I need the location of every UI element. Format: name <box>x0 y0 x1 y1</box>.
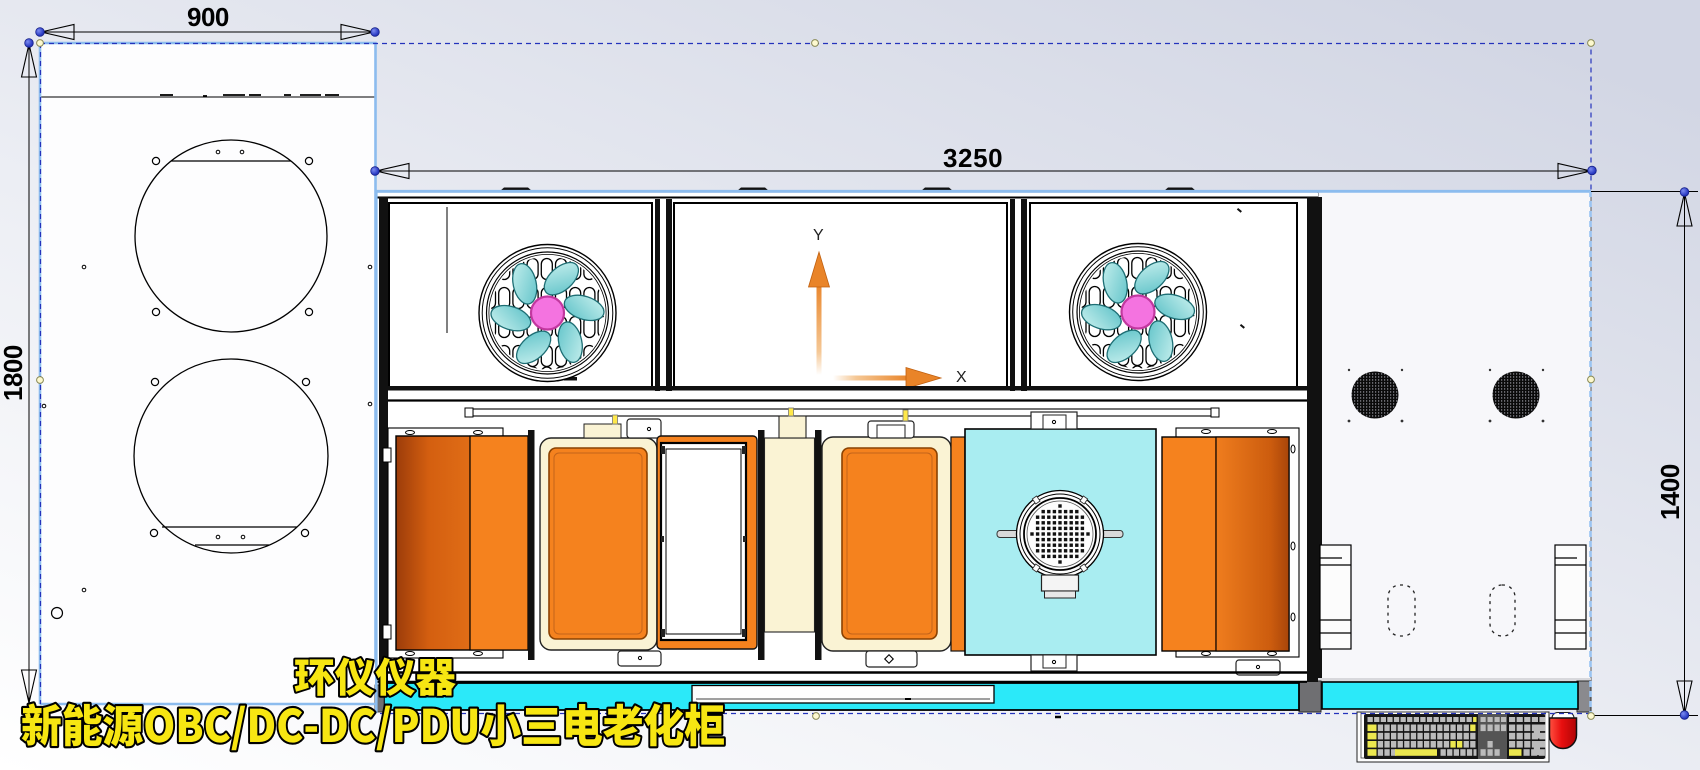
svg-text:Y: Y <box>813 227 824 244</box>
svg-text:1400: 1400 <box>1655 464 1685 520</box>
svg-text:1800: 1800 <box>0 345 28 401</box>
svg-text:X: X <box>956 369 967 386</box>
svg-text:3250: 3250 <box>943 143 1003 173</box>
svg-text:900: 900 <box>187 2 229 32</box>
